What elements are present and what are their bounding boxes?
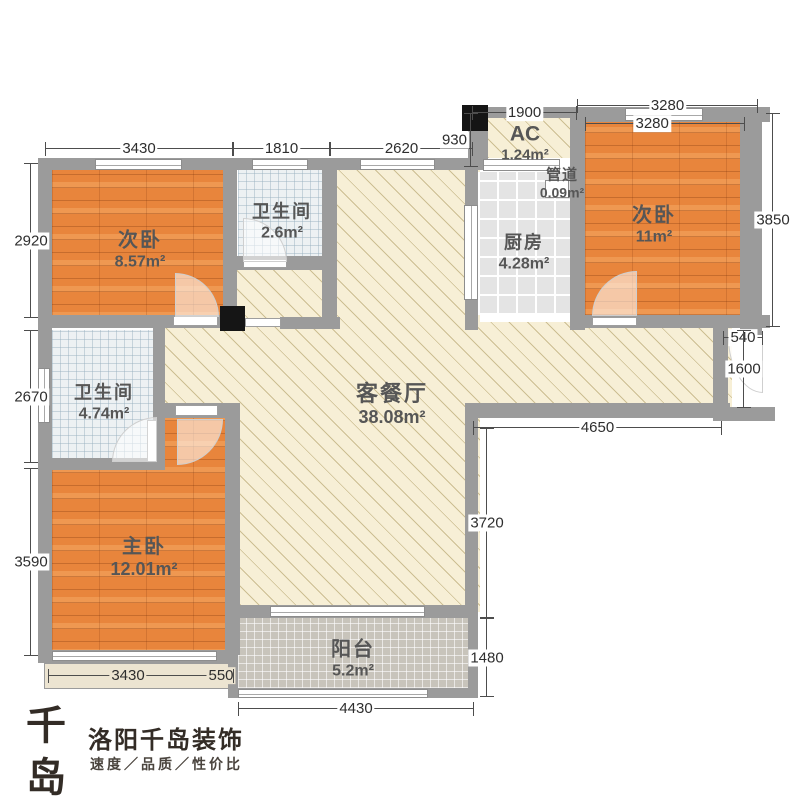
wall — [713, 407, 775, 421]
window — [360, 159, 435, 170]
dimension: 3590 — [30, 468, 31, 656]
room-label-ac: AC 1.24m² — [501, 121, 549, 164]
dimension: 4650 — [473, 427, 722, 428]
room-label-bathroom-left: 卫生间 4.74m² — [74, 383, 134, 424]
dimension: 550 — [208, 675, 234, 676]
dimension: 3850 — [772, 113, 773, 327]
dimension: 1600 — [743, 330, 744, 408]
dimension: 3720 — [486, 428, 487, 618]
window — [52, 651, 217, 661]
door-leaf — [175, 405, 218, 416]
wall — [280, 317, 340, 329]
wall — [322, 158, 337, 328]
wall — [570, 107, 585, 330]
room-label-master-bedroom: 主卧 12.01m² — [110, 535, 177, 581]
dimension: 1900 — [472, 112, 577, 113]
wall — [467, 403, 730, 418]
floor-plan: 次卧 8.57m² 卫生间 2.6m² 卫生间 4.74m² 主卧 12.01m… — [0, 0, 800, 800]
wall — [223, 158, 237, 320]
dimension: 3280 — [577, 105, 758, 106]
room-label-pipe-duct: 管道 0.09m² — [540, 167, 584, 202]
room-label-bedroom2-left: 次卧 8.57m² — [115, 228, 166, 271]
room-label-balcony: 阳台 5.2m² — [331, 637, 375, 680]
dimension: 1480 — [486, 618, 487, 697]
door-leaf — [592, 317, 637, 326]
room-label-bathroom-top: 卫生间 2.6m² — [252, 202, 312, 243]
dimension: 3280 — [585, 123, 745, 124]
kitchen-sliding-door — [464, 205, 478, 300]
window — [95, 159, 182, 170]
column-marker — [462, 105, 488, 131]
company-logo: 千岛 QIANDAO 洛阳千岛装饰 速度／品质／性价比 — [26, 698, 286, 788]
dimension: 2920 — [30, 163, 31, 318]
dimension: 930 — [470, 113, 471, 167]
window — [252, 159, 308, 170]
logo-mark: 千岛 QIANDAO — [26, 700, 92, 772]
wall-pass — [245, 318, 281, 327]
room-label-living-dining: 客餐厅 38.08m² — [356, 381, 428, 429]
wall — [465, 403, 478, 618]
dimension: 3430 — [45, 148, 233, 149]
dimension: 3430 — [48, 675, 208, 676]
door-leaf — [173, 316, 218, 326]
dimension: 1810 — [233, 148, 330, 149]
company-tagline: 速度／品质／性价比 — [90, 754, 243, 774]
window — [238, 689, 428, 698]
column-marker — [220, 306, 245, 331]
room-label-kitchen: 厨房 4.28m² — [499, 233, 550, 274]
window — [270, 606, 425, 617]
company-name: 洛阳千岛装饰 — [88, 720, 244, 755]
room-label-bedroom2-right: 次卧 11m² — [632, 203, 676, 246]
dimension: 2670 — [30, 330, 31, 463]
